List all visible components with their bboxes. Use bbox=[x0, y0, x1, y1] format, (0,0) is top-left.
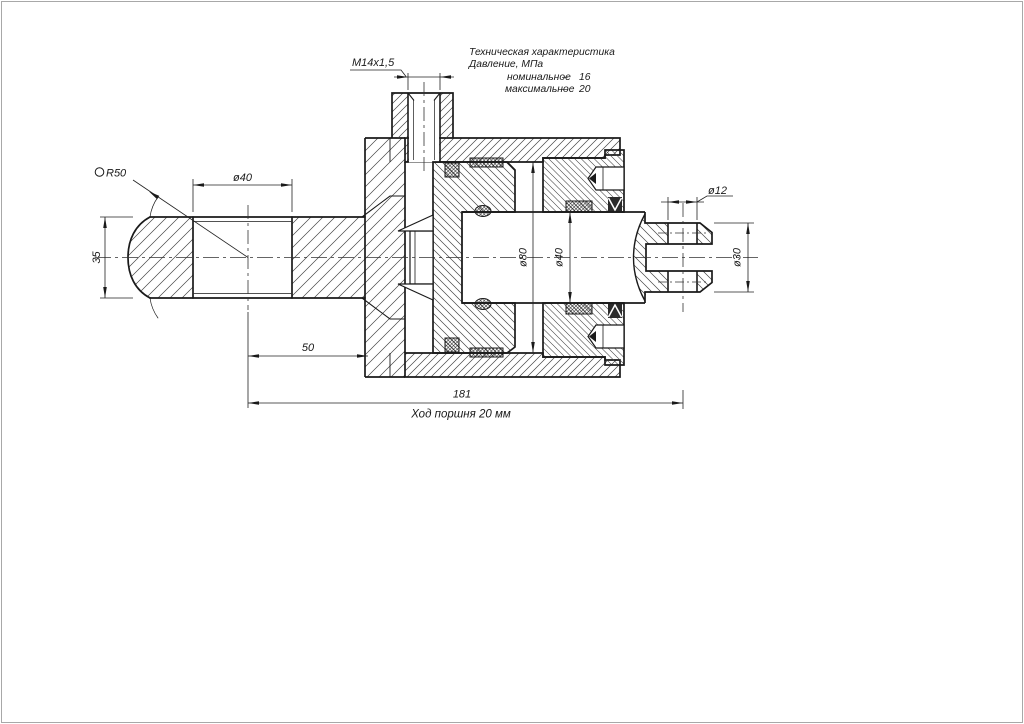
rod-seal-bottom bbox=[566, 303, 592, 314]
oring-top bbox=[445, 163, 459, 177]
dim-eye-hole-diameter: ø40 bbox=[233, 172, 253, 184]
wiper-seal-bottom bbox=[608, 303, 622, 318]
dim-eye-center-to-body: 50 bbox=[302, 342, 315, 354]
dim-pin-hole-diameter: ø12 bbox=[708, 185, 727, 197]
stroke-note: Ход поршня 20 мм bbox=[410, 409, 511, 421]
dim-rod-diameter: ø40 bbox=[554, 247, 566, 267]
wiper-seal-top bbox=[608, 197, 622, 212]
set-screw-top bbox=[588, 167, 624, 190]
technical-drawing: M14x1,5 R50 ø40 35 50 181 Ход поршня 20 … bbox=[0, 0, 1024, 724]
dim-bore-diameter: ø80 bbox=[518, 247, 530, 267]
drawing-sheet: M14x1,5 R50 ø40 35 50 181 Ход поршня 20 … bbox=[0, 0, 1024, 724]
tech-spec-row-nominal: номинальное–16 bbox=[507, 72, 591, 83]
rod-oring-bottom bbox=[475, 299, 491, 310]
oring-bottom bbox=[445, 338, 459, 352]
rod-seal-top bbox=[566, 201, 592, 212]
wear-band-top bbox=[470, 158, 503, 167]
tech-spec-title: Техническая характеристика bbox=[469, 47, 615, 58]
wear-band-bottom bbox=[470, 348, 503, 357]
set-screw-bottom bbox=[588, 325, 624, 348]
tech-spec-subtitle: Давление, МПа bbox=[468, 59, 543, 70]
dim-length: 181 bbox=[453, 389, 471, 401]
dim-eye-width: 35 bbox=[91, 251, 103, 264]
dim-sphere-radius: R50 bbox=[106, 168, 127, 180]
rod-oring-top bbox=[475, 206, 491, 217]
dim-port-thread: M14x1,5 bbox=[352, 57, 395, 69]
dim-clevis-diameter: ø30 bbox=[732, 247, 744, 267]
